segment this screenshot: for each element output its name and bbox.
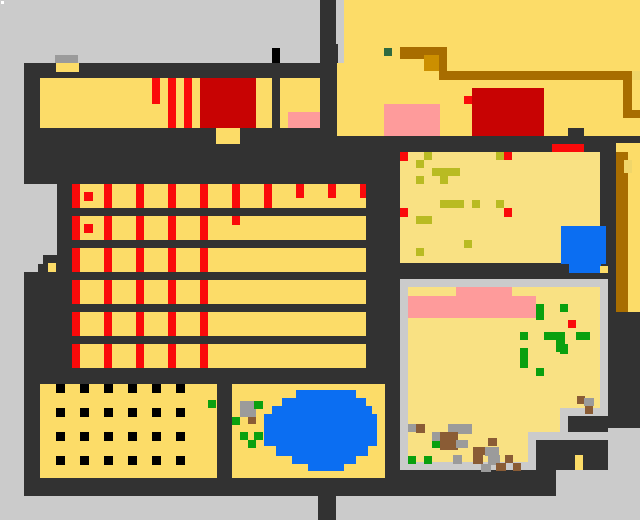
pale-tile (632, 71, 640, 80)
gray-block (55, 55, 78, 63)
stripe (168, 248, 176, 272)
stripe (136, 344, 144, 368)
stripe (72, 344, 80, 368)
south-gate-post (318, 496, 336, 520)
stripe (200, 344, 208, 368)
stripe (136, 312, 144, 336)
stripe (104, 216, 112, 240)
speckle (416, 160, 424, 168)
post-dot (104, 432, 113, 441)
bush (536, 304, 544, 320)
speckle (416, 216, 432, 224)
atrium-pink-zone (408, 296, 536, 318)
atrium-pink-zone (456, 287, 512, 296)
post-dot (128, 456, 137, 465)
west-pocket-step (24, 263, 38, 272)
stripe (72, 184, 80, 208)
rock (481, 464, 491, 472)
rock (473, 455, 483, 464)
stripe (104, 344, 112, 368)
post-dot (152, 384, 161, 393)
red-dot (400, 152, 408, 161)
stripe (168, 312, 176, 336)
post-dot (176, 384, 185, 393)
bush (520, 332, 528, 340)
rock (453, 455, 462, 464)
pond (272, 406, 372, 414)
stripe (168, 344, 176, 368)
bush (248, 440, 256, 448)
speckle (472, 200, 480, 208)
stripe (104, 184, 112, 208)
stripe (168, 78, 176, 128)
red-dot (504, 152, 512, 160)
post-dot (104, 456, 113, 465)
rock (416, 424, 425, 433)
stripe-short (360, 184, 366, 198)
game-map-viewport[interactable] (0, 0, 640, 520)
stripe (72, 312, 80, 336)
door-tick (48, 263, 56, 272)
stripe (200, 280, 208, 304)
east-hall-pool (569, 264, 601, 273)
post-dot (152, 408, 161, 417)
bush (240, 432, 248, 440)
post-dot (128, 384, 137, 393)
stripe (136, 248, 144, 272)
path (623, 80, 632, 110)
speckle (416, 248, 424, 256)
post-dot (80, 432, 89, 441)
stripe (168, 184, 176, 208)
rock (505, 455, 513, 463)
atrium-frame (400, 279, 608, 287)
red-dot (400, 208, 408, 217)
stripe (264, 184, 272, 208)
stripe (104, 312, 112, 336)
atrium-frame (400, 287, 408, 470)
bush-dark (384, 48, 392, 56)
stripe (104, 248, 112, 272)
red-dot (504, 208, 512, 217)
red-dot (84, 224, 93, 233)
speckle (464, 240, 472, 248)
market-row (72, 344, 366, 368)
northeast-red-building (472, 88, 544, 136)
stripe (72, 216, 80, 240)
post-dot (152, 456, 161, 465)
red-dot (232, 216, 240, 225)
north-room-pink (288, 112, 320, 128)
east-hall-pool (561, 226, 606, 264)
stripe (232, 184, 240, 208)
market-row (72, 280, 366, 304)
atrium-frame (600, 287, 608, 412)
post-dot (56, 456, 65, 465)
stripe (72, 248, 80, 272)
rock (488, 438, 497, 446)
post-dot (80, 456, 89, 465)
atrium-door (575, 455, 583, 470)
red-dot (84, 192, 93, 201)
dirt (248, 417, 256, 424)
stripe (200, 248, 208, 272)
pond (264, 414, 377, 446)
west-pocket (24, 184, 57, 255)
left-street (0, 63, 24, 520)
bush (520, 348, 528, 368)
stripe (200, 184, 208, 208)
pond (276, 446, 368, 456)
southeast-yard (556, 470, 604, 520)
pond (296, 390, 356, 398)
rock (496, 463, 506, 471)
post-dot (104, 408, 113, 417)
east-path (616, 152, 628, 312)
bush (560, 344, 568, 354)
speckle (440, 176, 448, 184)
stripe (168, 216, 176, 240)
atrium-step-wall (536, 440, 608, 470)
northeast-pink-pad (384, 104, 440, 136)
stripe-short (328, 184, 336, 198)
red-dot (464, 96, 472, 104)
speckle (496, 152, 504, 160)
rock (473, 447, 485, 455)
stripe (136, 280, 144, 304)
red-bar (552, 144, 584, 152)
yellow-tick (56, 63, 79, 72)
red-dot (568, 320, 576, 328)
bush (432, 440, 440, 448)
post-dot (80, 384, 89, 393)
black-post (272, 48, 280, 63)
bush (254, 432, 263, 440)
stripe (200, 216, 208, 240)
stripe (136, 216, 144, 240)
east-notch (616, 143, 640, 152)
yellow-tick (600, 266, 608, 273)
speckle (440, 200, 464, 208)
post-dot (176, 456, 185, 465)
speckle (416, 176, 424, 184)
stripe-short (296, 184, 304, 198)
bush (544, 332, 565, 340)
stripe (104, 280, 112, 304)
bush (254, 401, 263, 409)
stripe (200, 312, 208, 336)
stripe (136, 184, 144, 208)
rock (584, 398, 594, 406)
post-dot (56, 408, 65, 417)
rock (585, 406, 593, 414)
bush (408, 456, 416, 464)
pond (292, 456, 356, 464)
path-landing (424, 55, 439, 71)
stripe (152, 78, 160, 104)
white-pixel (1, 1, 4, 4)
bush (424, 456, 432, 464)
speckle (432, 168, 460, 176)
post-dot (152, 432, 161, 441)
bush (208, 400, 216, 408)
stripe (184, 78, 192, 128)
pond (308, 464, 344, 471)
path (439, 71, 632, 80)
post-dot (56, 432, 65, 441)
market-row (72, 216, 366, 240)
post-dot (128, 408, 137, 417)
pale-tile (624, 160, 632, 173)
path (623, 110, 640, 118)
rock (456, 440, 468, 448)
wall-nub (568, 128, 584, 137)
speckle (496, 200, 504, 208)
bush (560, 304, 568, 312)
stripe (168, 280, 176, 304)
post-dot (80, 408, 89, 417)
bush (232, 417, 240, 425)
stripe (72, 280, 80, 304)
post-dot (104, 384, 113, 393)
speckle (424, 152, 432, 160)
market-row (72, 248, 366, 272)
bush (536, 368, 544, 376)
rock (513, 463, 521, 471)
north-hall-red-block (200, 78, 256, 128)
bush (576, 332, 590, 340)
east-lane (628, 152, 640, 312)
pond (282, 398, 366, 406)
market-row (72, 184, 366, 208)
post-dot (128, 432, 137, 441)
post-dot (56, 384, 65, 393)
north-hall-door (216, 128, 240, 144)
post-dot (176, 432, 185, 441)
market-row (72, 312, 366, 336)
post-dot (176, 408, 185, 417)
